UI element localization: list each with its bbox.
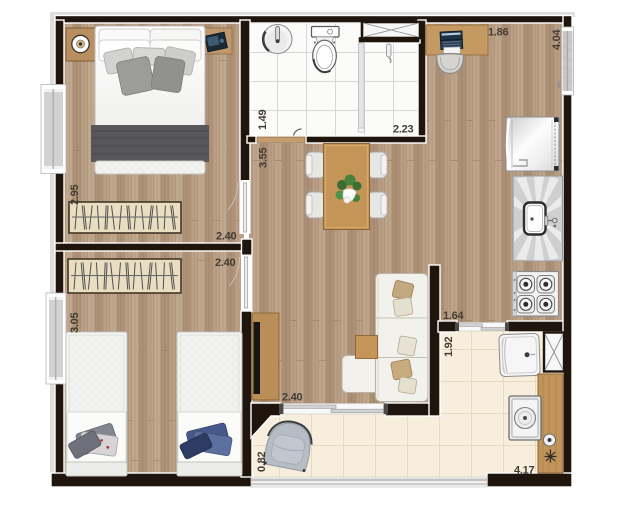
svg-text:4.04: 4.04 (551, 28, 563, 50)
svg-text:2.40: 2.40 (216, 231, 237, 243)
svg-text:1.64: 1.64 (443, 310, 465, 322)
svg-text:3.55: 3.55 (258, 147, 270, 168)
svg-text:4.17: 4.17 (514, 465, 535, 477)
svg-text:2.95: 2.95 (69, 184, 81, 205)
svg-text:0.82: 0.82 (256, 451, 268, 472)
svg-text:1.49: 1.49 (257, 109, 269, 130)
svg-text:3.05: 3.05 (69, 312, 81, 333)
svg-text:2.40: 2.40 (282, 392, 303, 404)
svg-text:1.92: 1.92 (443, 336, 455, 357)
svg-text:2.23: 2.23 (393, 124, 414, 136)
svg-text:2.40: 2.40 (215, 257, 236, 269)
svg-text:1.86: 1.86 (488, 27, 509, 39)
